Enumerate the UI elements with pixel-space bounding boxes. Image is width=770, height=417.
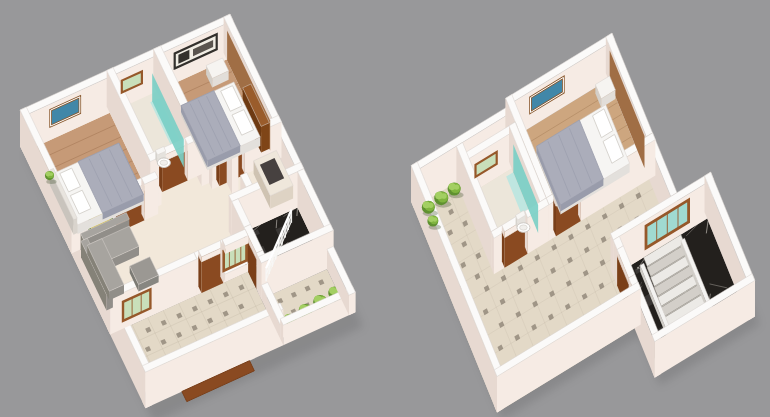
floor-plan-render [0, 0, 770, 417]
screenshot [0, 0, 770, 417]
wall-bedroom1-south [141, 172, 158, 221]
